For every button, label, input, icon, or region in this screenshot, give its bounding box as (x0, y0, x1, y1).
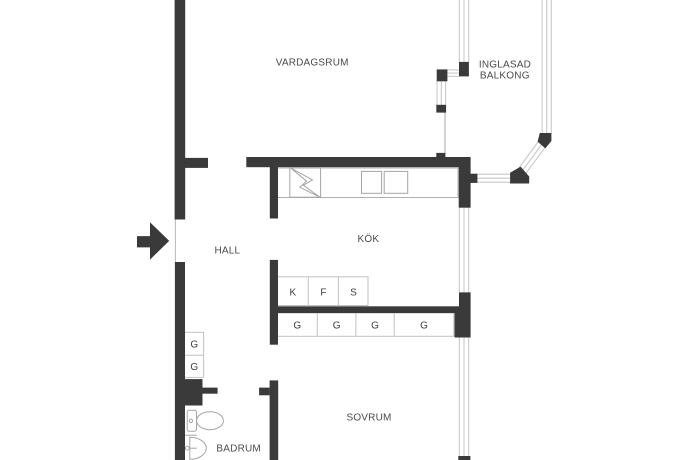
svg-text:VARDAGSRUM: VARDAGSRUM (276, 58, 349, 69)
svg-text:G: G (190, 340, 198, 351)
svg-text:G: G (371, 320, 379, 331)
svg-text:SOVRUM: SOVRUM (346, 413, 391, 424)
svg-text:K: K (289, 287, 296, 298)
svg-text:G: G (190, 362, 198, 373)
svg-text:G: G (333, 320, 341, 331)
svg-text:F: F (320, 287, 326, 298)
svg-text:G: G (293, 320, 301, 331)
svg-text:INGLASAD: INGLASAD (479, 59, 531, 70)
svg-text:G: G (420, 320, 428, 331)
svg-text:KÖK: KÖK (358, 233, 380, 245)
svg-text:BADRUM: BADRUM (216, 443, 261, 454)
svg-text:HALL: HALL (214, 246, 240, 257)
svg-text:BALKONG: BALKONG (480, 71, 530, 82)
svg-text:S: S (350, 287, 357, 298)
